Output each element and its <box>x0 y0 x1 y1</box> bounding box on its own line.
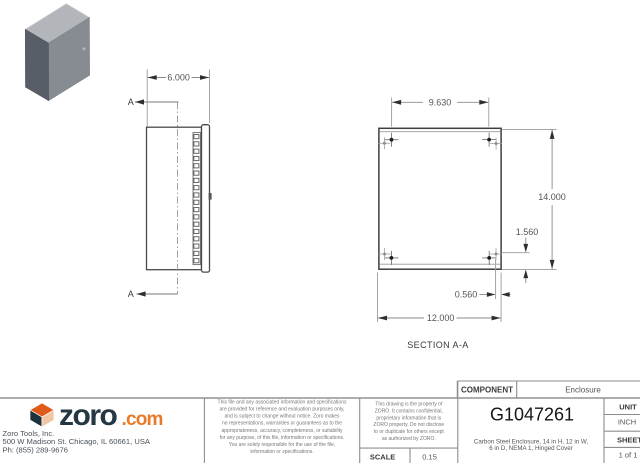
svg-text:.com: .com <box>122 409 163 430</box>
svg-text:0.15: 0.15 <box>422 453 437 462</box>
svg-text:UNIT: UNIT <box>619 402 637 411</box>
svg-text:are provided for reference and: are provided for reference and evaluatio… <box>220 407 345 413</box>
svg-text:appropriateness, accuracy, com: appropriateness, accuracy, completeness,… <box>221 428 343 434</box>
svg-text:1 of 1: 1 of 1 <box>619 450 638 459</box>
svg-text:SCALE: SCALE <box>370 453 395 462</box>
svg-text:You are solely responsible for: You are solely responsible for the use o… <box>229 442 335 448</box>
svg-text:information or specifications.: information or specifications. <box>250 449 313 455</box>
svg-text:zoro: zoro <box>59 399 118 432</box>
svg-text:This drawing is the property o: This drawing is the property of <box>375 402 443 408</box>
svg-text:12.000: 12.000 <box>427 313 455 323</box>
svg-text:Enclosure: Enclosure <box>565 385 601 394</box>
svg-text:6.000: 6.000 <box>167 73 190 83</box>
svg-text:ZORO property. Do not disclose: ZORO property. Do not disclose <box>373 422 444 428</box>
svg-text:6 in D, NEMA 1, Hinged Cover: 6 in D, NEMA 1, Hinged Cover <box>489 445 573 452</box>
svg-text:ZORO. It contains confidential: ZORO. It contains confidential, <box>375 408 443 414</box>
svg-text:A: A <box>128 289 134 299</box>
svg-text:and is subject to change witho: and is subject to change without notice.… <box>224 414 340 420</box>
svg-text:INCH: INCH <box>618 417 636 426</box>
svg-text:1.560: 1.560 <box>516 227 539 237</box>
svg-text:14.000: 14.000 <box>538 192 566 202</box>
svg-text:COMPONENT: COMPONENT <box>461 385 513 394</box>
svg-text:G1047261: G1047261 <box>490 404 574 424</box>
svg-text:proprietary information that i: proprietary information that is <box>376 415 441 421</box>
svg-text:no representations, warranties: no representations, warranties or guaran… <box>222 421 342 427</box>
svg-text:9.630: 9.630 <box>429 97 452 107</box>
svg-text:for any purpose, of this file,: for any purpose, of this file, informati… <box>220 435 345 441</box>
svg-text:A: A <box>128 97 134 107</box>
svg-text:as authorized by ZORO.: as authorized by ZORO. <box>382 436 436 442</box>
svg-text:Ph: (855) 289-9676: Ph: (855) 289-9676 <box>3 445 68 454</box>
svg-text:SHEET: SHEET <box>617 435 640 444</box>
svg-text:SECTION A-A: SECTION A-A <box>407 340 468 350</box>
svg-text:This file and any associated i: This file and any associated information… <box>218 399 347 405</box>
svg-text:0.560: 0.560 <box>455 290 478 300</box>
svg-text:to or duplicate for others exc: to or duplicate for others except <box>374 429 445 435</box>
